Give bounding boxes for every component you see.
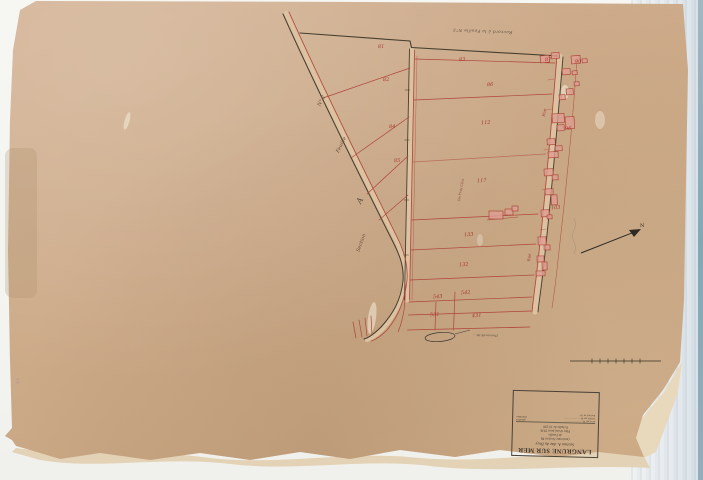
building	[547, 215, 552, 219]
building	[562, 68, 570, 75]
building	[555, 146, 562, 151]
building	[538, 237, 546, 245]
rue-label-mid: Rue	[526, 253, 532, 261]
parcel-number: 543	[433, 294, 443, 300]
red-linework	[289, 12, 577, 341]
paper-shadow-patch	[5, 148, 37, 298]
building	[536, 271, 545, 276]
building	[582, 59, 587, 63]
black-linework	[283, 14, 563, 339]
building	[545, 189, 553, 195]
parcel-number: 84	[389, 124, 396, 130]
commune-title: LANGRUNE SUR MER	[515, 445, 594, 455]
building	[551, 52, 560, 59]
parcel-number: 431	[472, 313, 482, 319]
faint-handwriting	[573, 218, 576, 254]
surveyor-role: géomètre	[516, 418, 526, 422]
parcel-number: 83	[459, 57, 466, 63]
building	[572, 71, 577, 75]
building	[559, 95, 565, 100]
building	[552, 113, 564, 123]
building	[544, 245, 550, 250]
paper-scratches	[122, 85, 605, 334]
building	[548, 151, 558, 158]
building	[489, 211, 503, 219]
title-block: LANGRUNE SUR MER Section A. dite du Bray…	[511, 390, 600, 458]
parcel-number: 86	[487, 82, 494, 88]
north-letter: N	[640, 223, 644, 229]
surveyor-leader: Exécuté en 19··	[579, 413, 596, 417]
parcel-number: 81	[378, 44, 385, 50]
building	[542, 262, 547, 270]
parcel-number: 132	[459, 262, 469, 268]
parcel-number: 90	[575, 59, 582, 65]
surveyor-table: Levé par M. ···················· géomètr…	[516, 411, 595, 424]
parcel-number: 542	[461, 290, 471, 296]
building	[512, 206, 518, 211]
building	[574, 82, 579, 86]
north-arrow	[573, 218, 642, 254]
parcel-number: 82	[383, 77, 390, 83]
scale-bar	[570, 359, 661, 364]
building	[547, 139, 555, 145]
buildings-group	[489, 52, 587, 276]
parcel-number: 112	[481, 120, 491, 126]
parcel-number: 103	[551, 205, 561, 211]
surveyor-role: contrôleur	[516, 415, 527, 419]
building	[537, 256, 544, 262]
scanned-map-sheet: Raccord à la Feuille N°3 N°.2 Feuille A …	[0, 0, 703, 480]
building	[552, 175, 558, 180]
building	[557, 125, 564, 131]
parcel-number: 87	[545, 57, 552, 63]
parcel-number: 531	[430, 312, 440, 318]
building	[551, 195, 557, 205]
parcel-number: 85	[394, 158, 401, 164]
parcel-number: 117	[477, 178, 487, 184]
building	[566, 89, 573, 95]
margin-stamp: 48	[15, 377, 20, 384]
parcel-number: 133	[464, 232, 474, 238]
parcel-number: 96	[565, 126, 572, 132]
